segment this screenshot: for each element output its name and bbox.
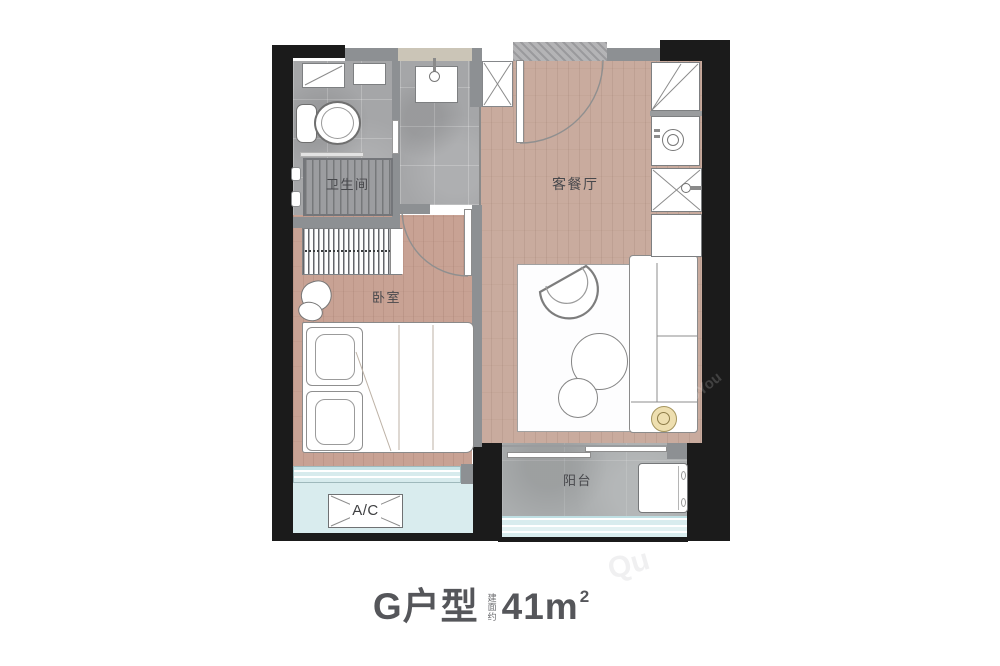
entry-threshold <box>513 42 607 61</box>
floor-plan-image: 卫生间 客餐厅 卧室 A/C 阳台 <box>0 0 1000 666</box>
shaft-side-wall <box>470 61 482 107</box>
wall-top-gray-right <box>607 48 660 61</box>
wall-bottom-balcony-strip <box>498 537 688 542</box>
washer-control-2 <box>654 135 660 138</box>
area-exponent: 2 <box>580 588 589 605</box>
balcony-glass-railing <box>498 516 688 537</box>
bedroom-label: 卧室 <box>372 291 401 304</box>
bathroom-door-leaf <box>392 120 399 154</box>
wardrobe-end-panel <box>390 229 403 274</box>
toilet-bowl-inner <box>321 107 354 139</box>
shaft-box <box>482 61 513 107</box>
balcony-washer-icon <box>638 463 688 513</box>
ac-window-end-block <box>461 464 473 484</box>
area-qualifier: 建面约 <box>488 594 499 623</box>
kitchen-faucet-bar <box>690 186 702 190</box>
ac-unit-box: A/C <box>328 494 403 528</box>
floor-lamp-inner <box>657 412 670 425</box>
sliding-door-panel-2 <box>507 452 591 458</box>
bathroom-cabinet-icon <box>302 63 345 88</box>
wall-top-left-black <box>272 45 345 58</box>
fridge-icon <box>651 62 700 111</box>
balcony-label: 阳台 <box>563 474 592 487</box>
entry-door-leaf <box>516 60 524 143</box>
living-dining-label: 客餐厅 <box>552 177 599 191</box>
wardrobe-rail-dots <box>305 250 399 252</box>
balcony-door-stub <box>667 443 687 459</box>
watermark-fragment-2: Qu <box>604 543 653 587</box>
coffee-table-small-icon <box>558 378 598 418</box>
bedroom-door-leaf <box>464 209 472 276</box>
area-value: 41m <box>502 588 579 625</box>
washer-drum-inner <box>667 134 679 146</box>
balcony-washer-knob-2 <box>681 498 686 507</box>
bedroom-window-strip <box>293 466 461 483</box>
balcony-washer-knob-1 <box>681 471 686 480</box>
shower-threshold <box>300 152 364 157</box>
mid-bottom-pillar <box>473 443 502 541</box>
pillow-2 <box>315 399 355 445</box>
bathroom-bottom-wall <box>293 217 400 228</box>
kitchen-counter <box>651 214 702 257</box>
bedroom-entry-wall <box>398 204 430 214</box>
pillow-1 <box>315 334 355 380</box>
shower-fixture-icon <box>291 167 301 181</box>
washer-control-1 <box>654 129 660 132</box>
bathroom-window-icon <box>353 63 386 85</box>
unit-name: G户型 <box>373 588 479 625</box>
ac-unit-label: A/C <box>329 495 402 526</box>
balcony-washer-line <box>678 466 679 510</box>
sliding-door-panel-1 <box>585 446 667 452</box>
hall-living-edge <box>479 107 481 205</box>
wall-left-black <box>272 45 293 541</box>
bathroom-label: 卫生间 <box>326 178 370 191</box>
washbasin-faucet-icon <box>429 71 440 82</box>
shower-fixture-icon-2 <box>291 191 301 207</box>
wall-bottom-left-strip <box>280 533 473 541</box>
balcony-right-pillar <box>687 443 730 541</box>
caption: G户型 建面约 41m 2 <box>0 588 962 625</box>
kitchen-sink-icon <box>651 168 702 212</box>
